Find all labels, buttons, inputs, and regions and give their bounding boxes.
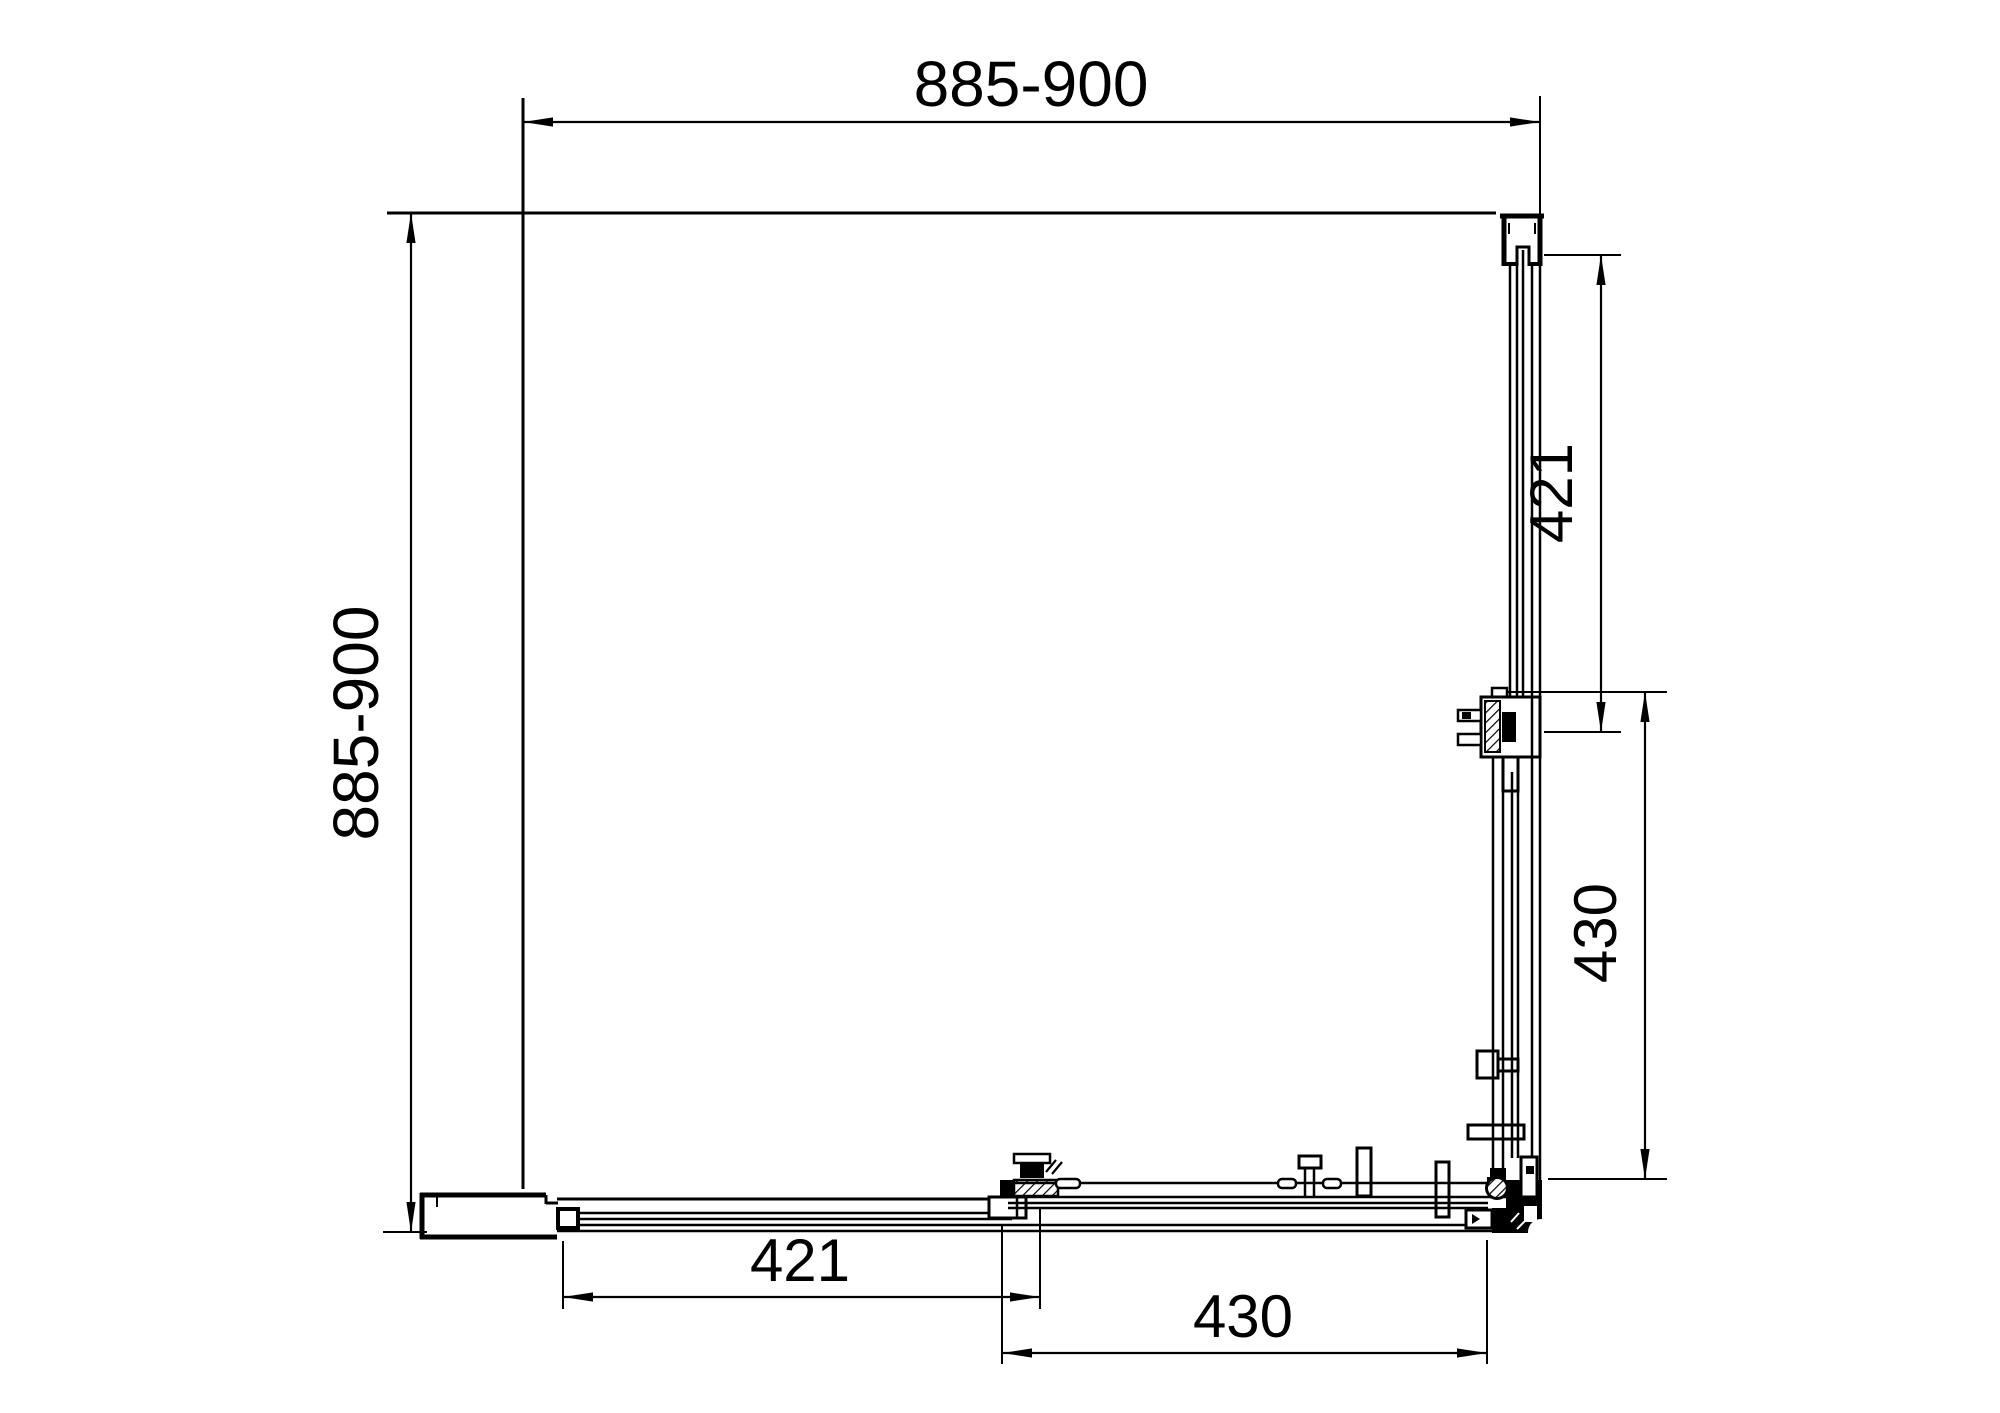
dim-label-left-height: 885-900 <box>320 606 392 841</box>
fixed-panel-bottom <box>557 1199 1015 1219</box>
roller-block <box>1020 1162 1044 1178</box>
dim-label-right-fixed: 421 <box>1518 443 1585 543</box>
dim-left-height: 885-900 <box>320 213 427 1232</box>
roller-hatched <box>1485 701 1500 752</box>
dim-label-top-width: 885-900 <box>914 48 1149 120</box>
bracket-screw <box>1462 712 1471 719</box>
dim-bottom-sliding-door: 430 <box>1002 1226 1487 1364</box>
door-bumper-tab <box>1468 1125 1524 1139</box>
door-knob-stem <box>1498 1059 1518 1071</box>
door-knob-plate <box>1477 1051 1498 1078</box>
dim-label-bottom-door: 430 <box>1193 1283 1293 1350</box>
dim-right-fixed-panel: 421 <box>1518 255 1621 732</box>
track-bottom <box>557 1225 1508 1231</box>
enclosure-outline <box>387 98 1496 1189</box>
roller-block <box>1502 712 1516 742</box>
technical-drawing-canvas: 885-900 885-900 421 430 421 430 <box>0 0 2000 1413</box>
door-bumper-tab <box>1357 1148 1371 1196</box>
shower-enclosure-plan-drawing: 885-900 885-900 421 430 421 430 <box>0 0 2000 1413</box>
bracket-arm <box>1458 734 1481 745</box>
dim-label-right-door: 430 <box>1562 883 1629 983</box>
dim-top-width: 885-900 <box>523 48 1540 214</box>
door-knob-plate <box>1299 1156 1321 1168</box>
wall-profile-bottom-left <box>420 1193 578 1239</box>
dim-label-bottom-fixed: 421 <box>750 1227 850 1294</box>
roller-bracket-right <box>1458 688 1540 791</box>
door-bumper <box>1323 1179 1341 1188</box>
corner-column <box>1521 1157 1537 1197</box>
glass-end-cap <box>558 1209 578 1228</box>
door-bumper <box>1278 1179 1296 1188</box>
bracket-cap <box>1014 1154 1050 1163</box>
corner-round-cutout <box>1528 1219 1554 1245</box>
door-bumper <box>1056 1179 1080 1188</box>
dim-right-sliding-door: 430 <box>1496 692 1667 1179</box>
sliding-door-bottom <box>1003 1148 1506 1208</box>
bracket-stub <box>1503 757 1518 791</box>
sliding-door-right <box>1468 757 1524 1180</box>
corner-column-screw <box>1526 1166 1534 1174</box>
corner-pivot-wheel <box>1487 1178 1508 1199</box>
corner-block-lower <box>1492 1208 1506 1233</box>
